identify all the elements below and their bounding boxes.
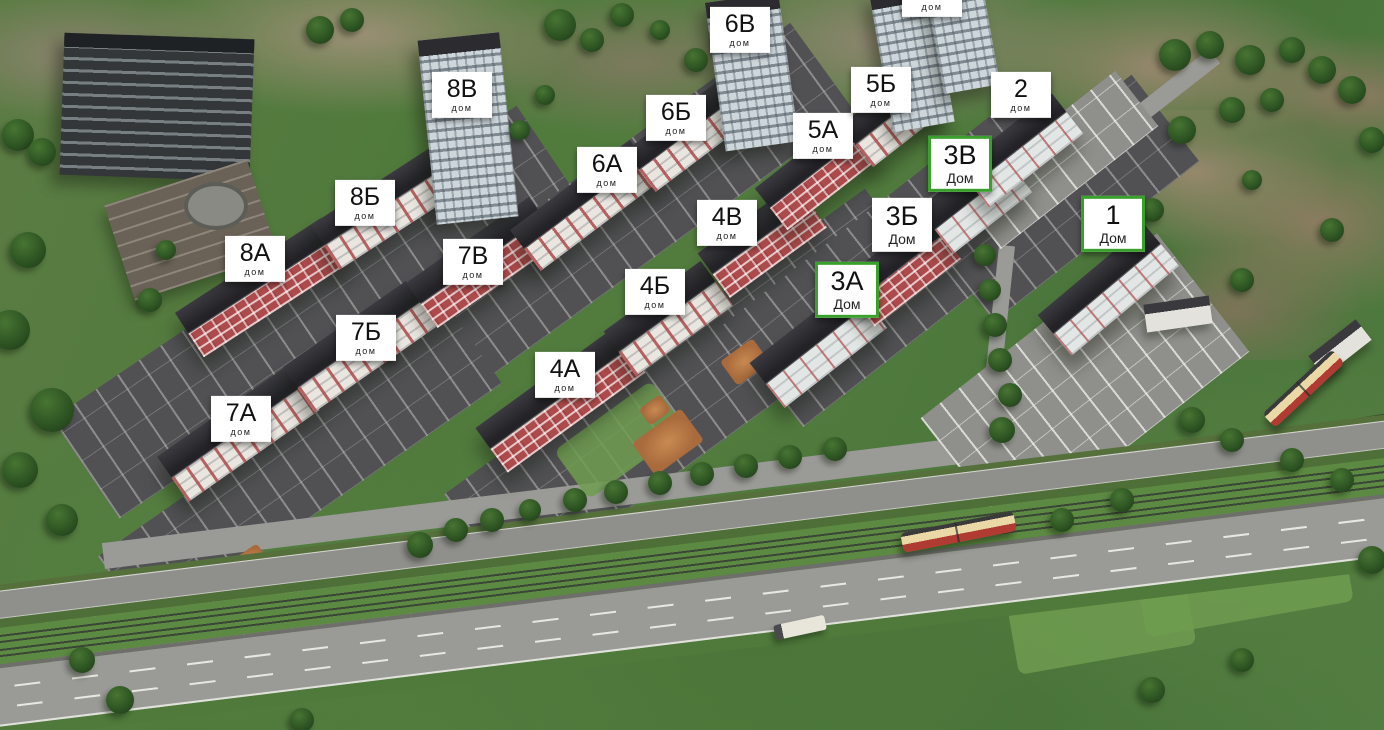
building-sublabel: Дом (880, 231, 924, 247)
building-id: 4В (705, 204, 749, 230)
building-label-6A[interactable]: 6Адом (577, 147, 637, 193)
building-label-2[interactable]: 2дом (991, 72, 1051, 118)
building-id: 3Б (880, 202, 924, 230)
building-label-8B[interactable]: 8Бдом (335, 180, 395, 226)
building-sublabel: дом (585, 178, 629, 188)
building-sublabel: Дом (825, 296, 869, 312)
building-sublabel: дом (718, 38, 762, 48)
building-id: 7В (451, 243, 495, 269)
building-sublabel: дом (343, 211, 387, 221)
building-id: 6А (585, 151, 629, 177)
building-label-3V[interactable]: 3ВДом (928, 136, 992, 192)
building-id: 4Б (633, 273, 677, 299)
building-sublabel: дом (344, 346, 388, 356)
building-label-8A[interactable]: 8Адом (225, 236, 285, 282)
building-id: 2 (999, 76, 1043, 102)
building-id: 7А (219, 400, 263, 426)
masterplan-render: 8Адом8Бдом8Вдом7Адом7Бдом7Вдом6Адом6Бдом… (0, 0, 1384, 730)
building-label-3A[interactable]: 3АДом (815, 262, 879, 318)
building-label-3B[interactable]: 3БДом (872, 198, 932, 252)
building-id: 8А (233, 240, 277, 266)
building-id: 5Б (859, 71, 903, 97)
building-sublabel: дом (654, 126, 698, 136)
building-sublabel: дом (705, 231, 749, 241)
building-label-8V[interactable]: 8Вдом (432, 72, 492, 118)
building-sublabel: дом (801, 144, 845, 154)
building-sublabel: дом (451, 270, 495, 280)
building-label-6V[interactable]: 6Вдом (710, 7, 770, 53)
building-label-7B[interactable]: 7Бдом (336, 315, 396, 361)
building-sublabel: дом (999, 103, 1043, 113)
building-id: 4А (543, 356, 587, 382)
building-id: 5В (910, 0, 954, 1)
building-sublabel: дом (440, 103, 484, 113)
building-id: 6В (718, 11, 762, 37)
building-markers-layer: 8Адом8Бдом8Вдом7Адом7Бдом7Вдом6Адом6Бдом… (0, 0, 1384, 730)
building-sublabel: дом (543, 383, 587, 393)
building-sublabel: дом (859, 98, 903, 108)
building-sublabel: Дом (938, 170, 982, 186)
building-label-6B[interactable]: 6Бдом (646, 95, 706, 141)
building-id: 3В (938, 141, 982, 169)
building-label-5B[interactable]: 5Бдом (851, 67, 911, 113)
building-id: 5А (801, 117, 845, 143)
building-sublabel: дом (219, 427, 263, 437)
building-label-7V[interactable]: 7Вдом (443, 239, 503, 285)
building-id: 1 (1091, 201, 1135, 229)
building-label-4B[interactable]: 4Бдом (625, 269, 685, 315)
building-label-4A[interactable]: 4Адом (535, 352, 595, 398)
building-label-1[interactable]: 1Дом (1081, 196, 1145, 252)
building-sublabel: дом (233, 267, 277, 277)
building-sublabel: дом (910, 2, 954, 12)
building-label-5V[interactable]: 5Вдом (902, 0, 962, 17)
building-sublabel: дом (633, 300, 677, 310)
building-label-4V[interactable]: 4Вдом (697, 200, 757, 246)
building-id: 8Б (343, 184, 387, 210)
building-id: 7Б (344, 319, 388, 345)
building-id: 6Б (654, 99, 698, 125)
building-label-5A[interactable]: 5Адом (793, 113, 853, 159)
building-sublabel: Дом (1091, 230, 1135, 246)
building-label-7A[interactable]: 7Адом (211, 396, 271, 442)
building-id: 3А (825, 267, 869, 295)
building-id: 8В (440, 76, 484, 102)
